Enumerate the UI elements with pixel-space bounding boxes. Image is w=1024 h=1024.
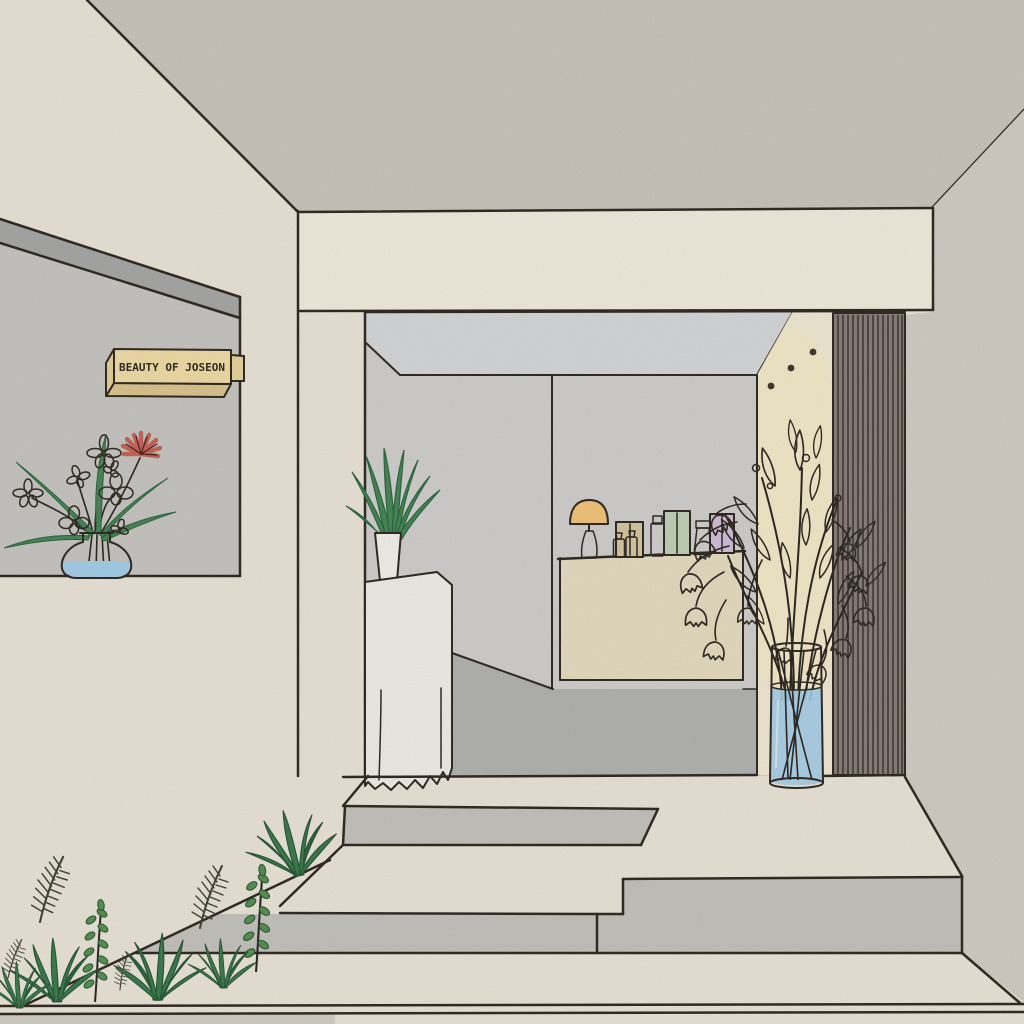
storefront-illustration: BEAUTY OF JOSEON [0,0,1024,1024]
paper-grain-texture [0,0,1024,1024]
illustration-canvas: BEAUTY OF JOSEON [0,0,1024,1024]
